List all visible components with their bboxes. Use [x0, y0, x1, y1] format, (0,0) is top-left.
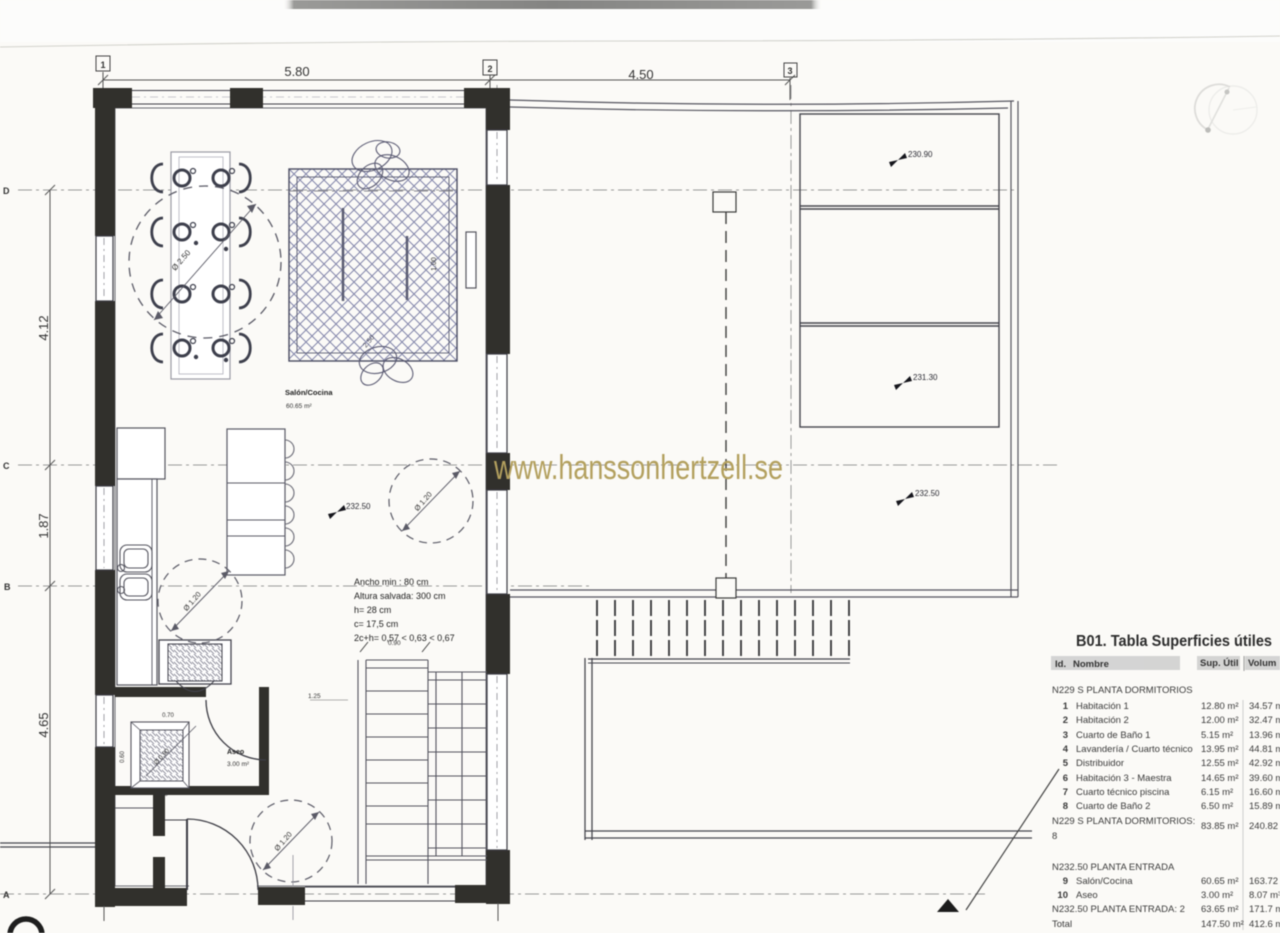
svg-text:1.00: 1.00: [431, 257, 438, 271]
svg-text:4.50: 4.50: [628, 67, 653, 82]
svg-text:4: 4: [1063, 744, 1069, 755]
svg-text:3.00 m²: 3.00 m²: [227, 761, 250, 768]
svg-text:240.82 m³: 240.82 m³: [1249, 821, 1280, 832]
svg-text:Salón/Cocina: Salón/Cocina: [285, 388, 333, 397]
svg-text:1.87: 1.87: [36, 513, 51, 538]
svg-text:412.6 m³: 412.6 m³: [1249, 919, 1280, 930]
svg-text:231.30: 231.30: [913, 373, 938, 382]
svg-text:2: 2: [1063, 715, 1068, 726]
svg-text:32.47 m³: 32.47 m³: [1249, 715, 1280, 726]
svg-text:B01. Tabla Superficies útiles: B01. Tabla Superficies útiles: [1076, 633, 1272, 650]
svg-text:163.72 m³: 163.72 m³: [1249, 876, 1280, 887]
svg-text:9: 9: [1063, 876, 1068, 887]
svg-text:c= 17,5 cm: c= 17,5 cm: [354, 619, 398, 629]
svg-text:12.00 m²: 12.00 m²: [1201, 715, 1239, 726]
svg-text:14.65 m²: 14.65 m²: [1201, 773, 1239, 784]
svg-text:10: 10: [1057, 890, 1068, 901]
svg-text:12.80 m²: 12.80 m²: [1201, 701, 1239, 712]
svg-text:42.92 m³: 42.92 m³: [1249, 758, 1280, 769]
svg-text:Cuarto técnico piscina: Cuarto técnico piscina: [1076, 787, 1170, 798]
svg-text:www.hanssonhertzell.se: www.hanssonhertzell.se: [493, 449, 783, 487]
svg-text:Cuarto de Baño 2: Cuarto de Baño 2: [1076, 801, 1150, 812]
svg-text:3: 3: [787, 66, 792, 76]
svg-text:232.50: 232.50: [915, 489, 940, 498]
svg-text:Habitación 2: Habitación 2: [1076, 715, 1129, 726]
svg-text:Habitación 3 - Maestra: Habitación 3 - Maestra: [1076, 773, 1172, 784]
svg-text:6.50 m²: 6.50 m²: [1201, 801, 1233, 812]
svg-text:7: 7: [1063, 787, 1068, 798]
svg-text:0.40: 0.40: [156, 792, 168, 798]
svg-text:A: A: [3, 890, 10, 900]
svg-text:B: B: [4, 582, 11, 592]
svg-text:0.70: 0.70: [162, 713, 174, 719]
svg-text:34.57 m³: 34.57 m³: [1249, 701, 1280, 712]
svg-text:171.7 m³: 171.7 m³: [1249, 904, 1280, 915]
svg-text:39.60 m³: 39.60 m³: [1249, 773, 1280, 784]
svg-text:Ancho min : 80 cm: Ancho min : 80 cm: [354, 577, 429, 587]
svg-text:Volum: Volum: [1248, 658, 1276, 669]
svg-text:Cuarto de Baño 1: Cuarto de Baño 1: [1076, 730, 1150, 741]
svg-text:0.60: 0.60: [120, 751, 126, 763]
svg-text:232.50: 232.50: [346, 502, 371, 511]
svg-text:13.96 m³: 13.96 m³: [1249, 730, 1280, 741]
svg-text:Habitación 1: Habitación 1: [1076, 701, 1129, 712]
svg-text:N229 S PLANTA DORMITORIOS:: N229 S PLANTA DORMITORIOS:: [1052, 816, 1195, 827]
svg-text:Aseo: Aseo: [1076, 890, 1098, 901]
svg-text:2c+h= 0,57 < 0,63 < 0,67: 2c+h= 0,57 < 0,63 < 0,67: [354, 633, 455, 643]
svg-text:4.65: 4.65: [36, 712, 51, 737]
svg-text:Lavandería / Cuarto técnico: Lavandería / Cuarto técnico: [1076, 744, 1193, 755]
svg-text:15.89 m³: 15.89 m³: [1249, 801, 1280, 812]
svg-text:Distribuidor: Distribuidor: [1076, 758, 1124, 769]
svg-text:N232.50 PLANTA ENTRADA: 2: N232.50 PLANTA ENTRADA: 2: [1052, 904, 1185, 915]
svg-text:230.90: 230.90: [908, 150, 933, 159]
svg-text:60.65 m²: 60.65 m²: [286, 403, 312, 410]
svg-text:N232.50 PLANTA ENTRADA: N232.50 PLANTA ENTRADA: [1052, 862, 1175, 873]
svg-text:Aseo: Aseo: [227, 749, 244, 756]
svg-text:Sup. Útil: Sup. Útil: [1200, 657, 1239, 669]
svg-text:83.85 m²: 83.85 m²: [1201, 821, 1239, 832]
svg-text:Salón/Cocina: Salón/Cocina: [1076, 876, 1133, 887]
svg-text:Id.: Id.: [1055, 659, 1066, 670]
svg-text:8: 8: [1063, 801, 1068, 812]
svg-text:5: 5: [1063, 758, 1069, 769]
svg-text:6.15 m²: 6.15 m²: [1201, 787, 1233, 798]
svg-text:h= 28 cm: h= 28 cm: [354, 605, 391, 615]
svg-text:44.81 m³: 44.81 m³: [1249, 744, 1280, 755]
svg-text:16.60 m³: 16.60 m³: [1249, 787, 1280, 798]
svg-text:63.65 m²: 63.65 m²: [1201, 904, 1239, 915]
svg-text:4.12: 4.12: [36, 315, 51, 340]
svg-text:2: 2: [487, 64, 492, 74]
svg-text:Total: Total: [1052, 919, 1072, 930]
svg-text:N229 S PLANTA DORMITORIOS: N229 S PLANTA DORMITORIOS: [1052, 685, 1193, 696]
svg-text:3: 3: [1063, 730, 1068, 741]
svg-text:0.90: 0.90: [388, 640, 401, 647]
svg-text:1: 1: [100, 60, 105, 70]
svg-text:5.80: 5.80: [284, 64, 309, 79]
svg-text:8: 8: [1052, 831, 1057, 842]
svg-text:60.65 m²: 60.65 m²: [1201, 876, 1239, 887]
svg-text:1.25: 1.25: [308, 693, 321, 700]
svg-text:D: D: [3, 186, 10, 196]
svg-text:C: C: [3, 461, 10, 471]
svg-text:8.07 m³: 8.07 m³: [1249, 890, 1280, 901]
svg-text:Nombre: Nombre: [1073, 659, 1109, 670]
svg-text:Altura salvada: 300 cm: Altura salvada: 300 cm: [354, 591, 446, 601]
svg-text:147.50 m²: 147.50 m²: [1201, 919, 1244, 930]
svg-text:3.00 m²: 3.00 m²: [1201, 890, 1233, 901]
svg-text:6: 6: [1063, 773, 1068, 784]
svg-text:12.55 m²: 12.55 m²: [1201, 758, 1239, 769]
svg-text:13.95 m²: 13.95 m²: [1201, 744, 1239, 755]
svg-text:5.15 m²: 5.15 m²: [1201, 730, 1233, 741]
svg-text:1: 1: [1063, 701, 1069, 712]
